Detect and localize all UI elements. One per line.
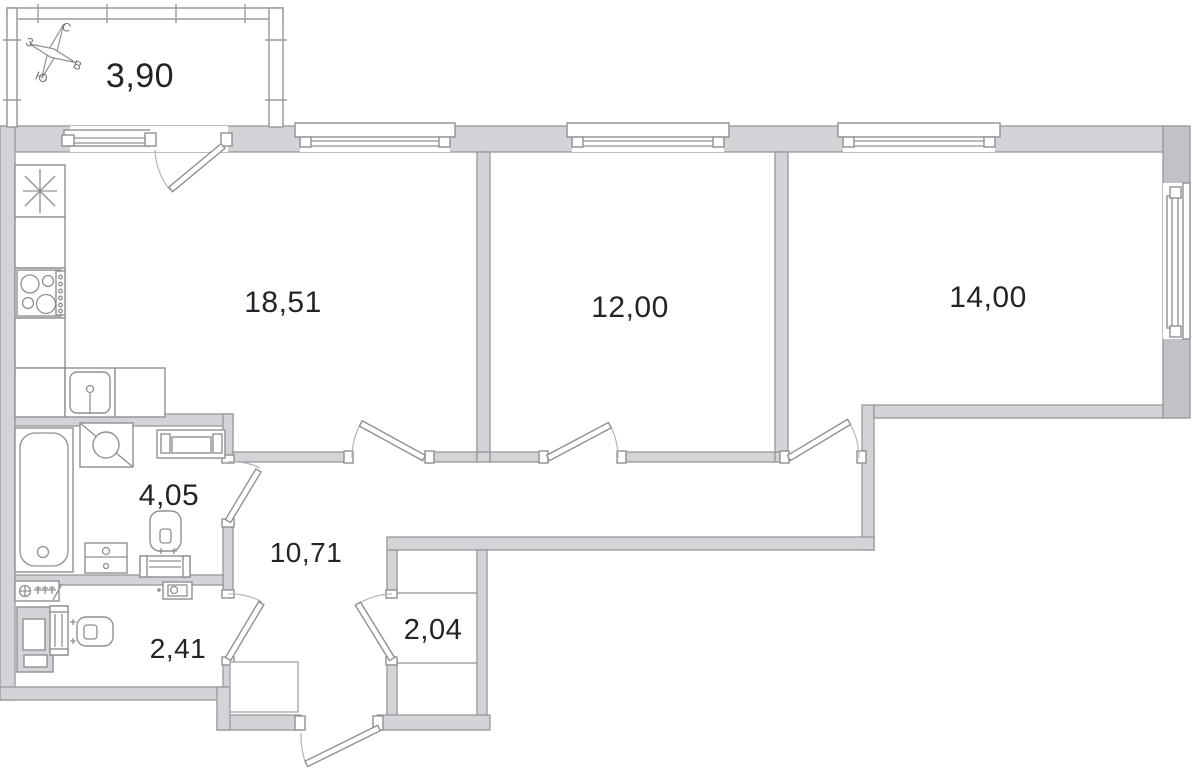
wall-toilet-icon xyxy=(50,606,113,655)
window-bedroom-2-side xyxy=(1163,183,1190,339)
room-label-bedroom-1: 12,00 xyxy=(591,291,669,324)
stove-icon xyxy=(17,270,65,316)
drawer-cabinet-icon xyxy=(85,543,127,573)
room-label-wardrobe: 2,04 xyxy=(404,614,462,646)
vent-shaft-icon xyxy=(17,607,53,672)
washing-machine-icon xyxy=(80,423,133,467)
bathroom-door xyxy=(222,455,261,527)
room-label-kitchen-living: 18,51 xyxy=(244,286,322,319)
entrance-door xyxy=(295,715,383,767)
water-meter-icon xyxy=(15,581,62,601)
compass-south: Ю xyxy=(33,69,49,87)
extractor-box-icon xyxy=(157,582,192,599)
room-label-balcony: 3,90 xyxy=(106,57,174,95)
balcony-door xyxy=(145,126,232,192)
compass-west: З xyxy=(24,34,36,50)
bedroom-1-door xyxy=(539,422,626,463)
room-label-bedroom-2: 14,00 xyxy=(949,281,1027,314)
shelf-unit-icon xyxy=(157,430,225,458)
toilet-icon xyxy=(140,511,190,577)
wardrobe-rail-bottom xyxy=(399,668,475,708)
room-label-hallway: 10,71 xyxy=(270,537,343,568)
floor-plan-page: С З В Ю xyxy=(0,0,1192,768)
kitchen-sink-icon xyxy=(70,372,110,414)
living-room-door xyxy=(344,421,434,463)
compass-east: В xyxy=(71,57,84,73)
window-living-room xyxy=(295,123,455,152)
hall-wardrobe-area xyxy=(230,662,298,712)
window-bedroom-1 xyxy=(567,123,729,152)
wardrobe-door xyxy=(355,590,397,665)
floor-plan: С З В Ю xyxy=(0,0,1192,768)
wardrobe-rail-top xyxy=(399,551,475,591)
window-bedroom-2 xyxy=(838,123,1000,152)
wc-door xyxy=(222,590,264,665)
bathtub-icon xyxy=(15,428,73,572)
room-label-bathroom: 4,05 xyxy=(139,479,199,512)
room-label-wc: 2,41 xyxy=(150,633,207,664)
kitchen-fixtures xyxy=(15,165,165,417)
bedroom-2-door xyxy=(780,419,866,463)
window-kitchen xyxy=(62,126,158,152)
compass-rose-icon xyxy=(20,15,87,87)
